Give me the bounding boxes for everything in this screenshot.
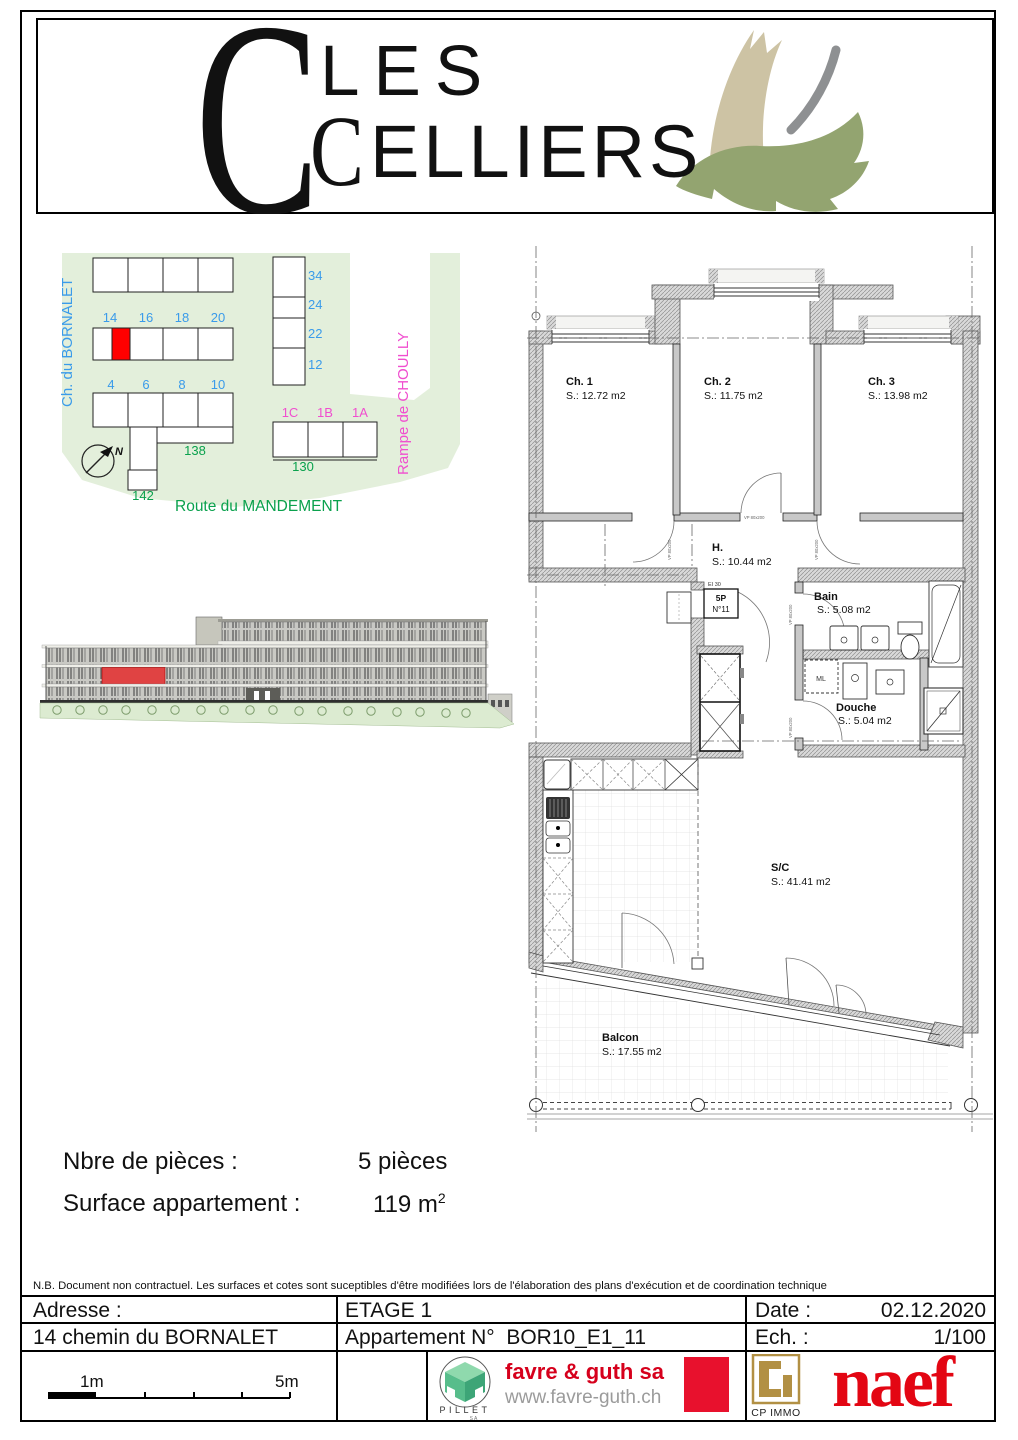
site-num-6: 6 [142, 377, 149, 392]
address-label: Adresse : [33, 1299, 122, 1323]
room-ch1-area: S.: 12.72 m2 [566, 390, 626, 402]
floor-finishes [534, 790, 948, 1100]
building-elevation [35, 593, 527, 738]
rooms-count-label: Nbre de pièces : [63, 1148, 238, 1176]
entry-fire-rating: EI 30 [708, 582, 721, 588]
site-num-1b: 1B [317, 405, 333, 420]
door-tag: VP 80x200 [788, 604, 793, 625]
scale-bar-solid [48, 1392, 96, 1399]
logo-initial-1: C [195, 18, 320, 214]
logo-leaf-icon [676, 30, 869, 212]
site-num-12: 12 [308, 357, 322, 372]
site-num-14: 14 [103, 310, 117, 325]
room-douche-area: S.: 5.04 m2 [838, 715, 892, 727]
room-ch3-area: S.: 13.98 m2 [868, 390, 928, 402]
entry-number: N°11 [712, 605, 730, 614]
street-mandement: Route du MANDEMENT [175, 498, 343, 515]
street-choully: Rampe de CHOULLY [395, 332, 412, 475]
scale-5m-label: 5m [275, 1372, 299, 1392]
site-num-18: 18 [175, 310, 189, 325]
les-celliers-logo: C LES C ELLIERS [36, 18, 994, 214]
scale-1m-label: 1m [80, 1372, 104, 1392]
door-tag: VP 80x200 [788, 717, 793, 738]
site-num-130: 130 [292, 459, 314, 474]
room-douche-name: Douche [836, 702, 876, 714]
logo-word-2: ELLIERS [370, 110, 702, 193]
site-num-1c: 1C [282, 405, 299, 420]
pillet-name: PILLET [439, 1405, 490, 1415]
site-num-24: 24 [308, 297, 322, 312]
site-num-20: 20 [211, 310, 225, 325]
apartment-number: Appartement N° BOR10_E1_11 [345, 1326, 646, 1350]
floor-plan: EI 30 5P N°11 ML [525, 240, 995, 1140]
room-hall-name: H. [712, 542, 723, 554]
door-tag: VP 80x200 [814, 539, 819, 560]
pillet-logo: PILLET SA [432, 1356, 498, 1420]
surface-value: 119 m2 [373, 1190, 446, 1219]
site-num-138: 138 [184, 443, 206, 458]
room-sc-area: S.: 41.41 m2 [771, 876, 831, 888]
pillet-sub: SA [470, 1416, 479, 1420]
logo-initial-2: C [310, 95, 364, 207]
highlighted-building-unit [112, 328, 130, 360]
room-ch1-name: Ch. 1 [566, 376, 593, 388]
plan-sheet: C LES C ELLIERS [0, 0, 1018, 1440]
rooms-count-value: 5 pièces [358, 1148, 447, 1176]
naef-logo: naef [832, 1352, 952, 1413]
disclaimer-note: N.B. Document non contractuel. Les surfa… [33, 1280, 827, 1292]
site-num-22: 22 [308, 326, 322, 341]
apartment-value: BOR10_E1_11 [506, 1326, 646, 1349]
door-tag: VP 80x200 [744, 515, 765, 520]
site-plan: N 34 24 22 12 14 16 18 20 4 6 8 10 1C 1B… [40, 240, 460, 530]
room-ch3-name: Ch. 3 [868, 376, 895, 388]
surface-exponent: 2 [438, 1190, 446, 1206]
surface-label: Surface appartement : [63, 1190, 300, 1218]
favre-guth-name: favre & guth sa [505, 1360, 664, 1384]
room-hall-area: S.: 10.44 m2 [712, 556, 772, 568]
entry-type: 5P [716, 593, 727, 603]
leaf-stem [791, 50, 836, 130]
floor-label: ETAGE 1 [345, 1299, 432, 1323]
apartment-label: Appartement N° [345, 1326, 495, 1349]
surface-number: 119 m [373, 1191, 438, 1218]
cp-immo-name: CP IMMO [751, 1407, 800, 1419]
north-label: N [115, 446, 124, 458]
elevation-highlighted-apartment [102, 668, 165, 685]
site-num-34: 34 [308, 268, 322, 283]
cp-immo-logo: CP IMMO [750, 1354, 810, 1420]
room-balcon-area: S.: 17.55 m2 [602, 1046, 662, 1058]
door-tag: VP 80x200 [667, 539, 672, 560]
site-num-4: 4 [107, 377, 114, 392]
date-value: 02.12.2020 [755, 1299, 986, 1323]
site-num-8: 8 [178, 377, 185, 392]
room-balcon-name: Balcon [602, 1032, 639, 1044]
site-num-1a: 1A [352, 405, 368, 420]
room-ch2-name: Ch. 2 [704, 376, 731, 388]
address-value: 14 chemin du BORNALET [33, 1326, 278, 1350]
favre-guth-logo: favre & guth sa www.favre-guth.ch [505, 1360, 664, 1409]
site-num-142: 142 [132, 488, 154, 503]
favre-guth-url: www.favre-guth.ch [505, 1388, 664, 1409]
red-square-logo [684, 1357, 729, 1412]
site-num-10: 10 [211, 377, 225, 392]
room-ch2-area: S.: 11.75 m2 [704, 390, 763, 402]
washing-machine-label: ML [816, 676, 826, 683]
windows [547, 269, 958, 346]
site-num-16: 16 [139, 310, 153, 325]
room-sc-name: S/C [771, 862, 789, 874]
room-bain-area: S.: 5.08 m2 [817, 604, 871, 616]
elevator-shafts [700, 654, 744, 751]
room-bain-name: Bain [814, 591, 838, 603]
street-bornalet: Ch. du BORNALET [59, 278, 76, 407]
leaf-lower-lobe [676, 112, 869, 212]
